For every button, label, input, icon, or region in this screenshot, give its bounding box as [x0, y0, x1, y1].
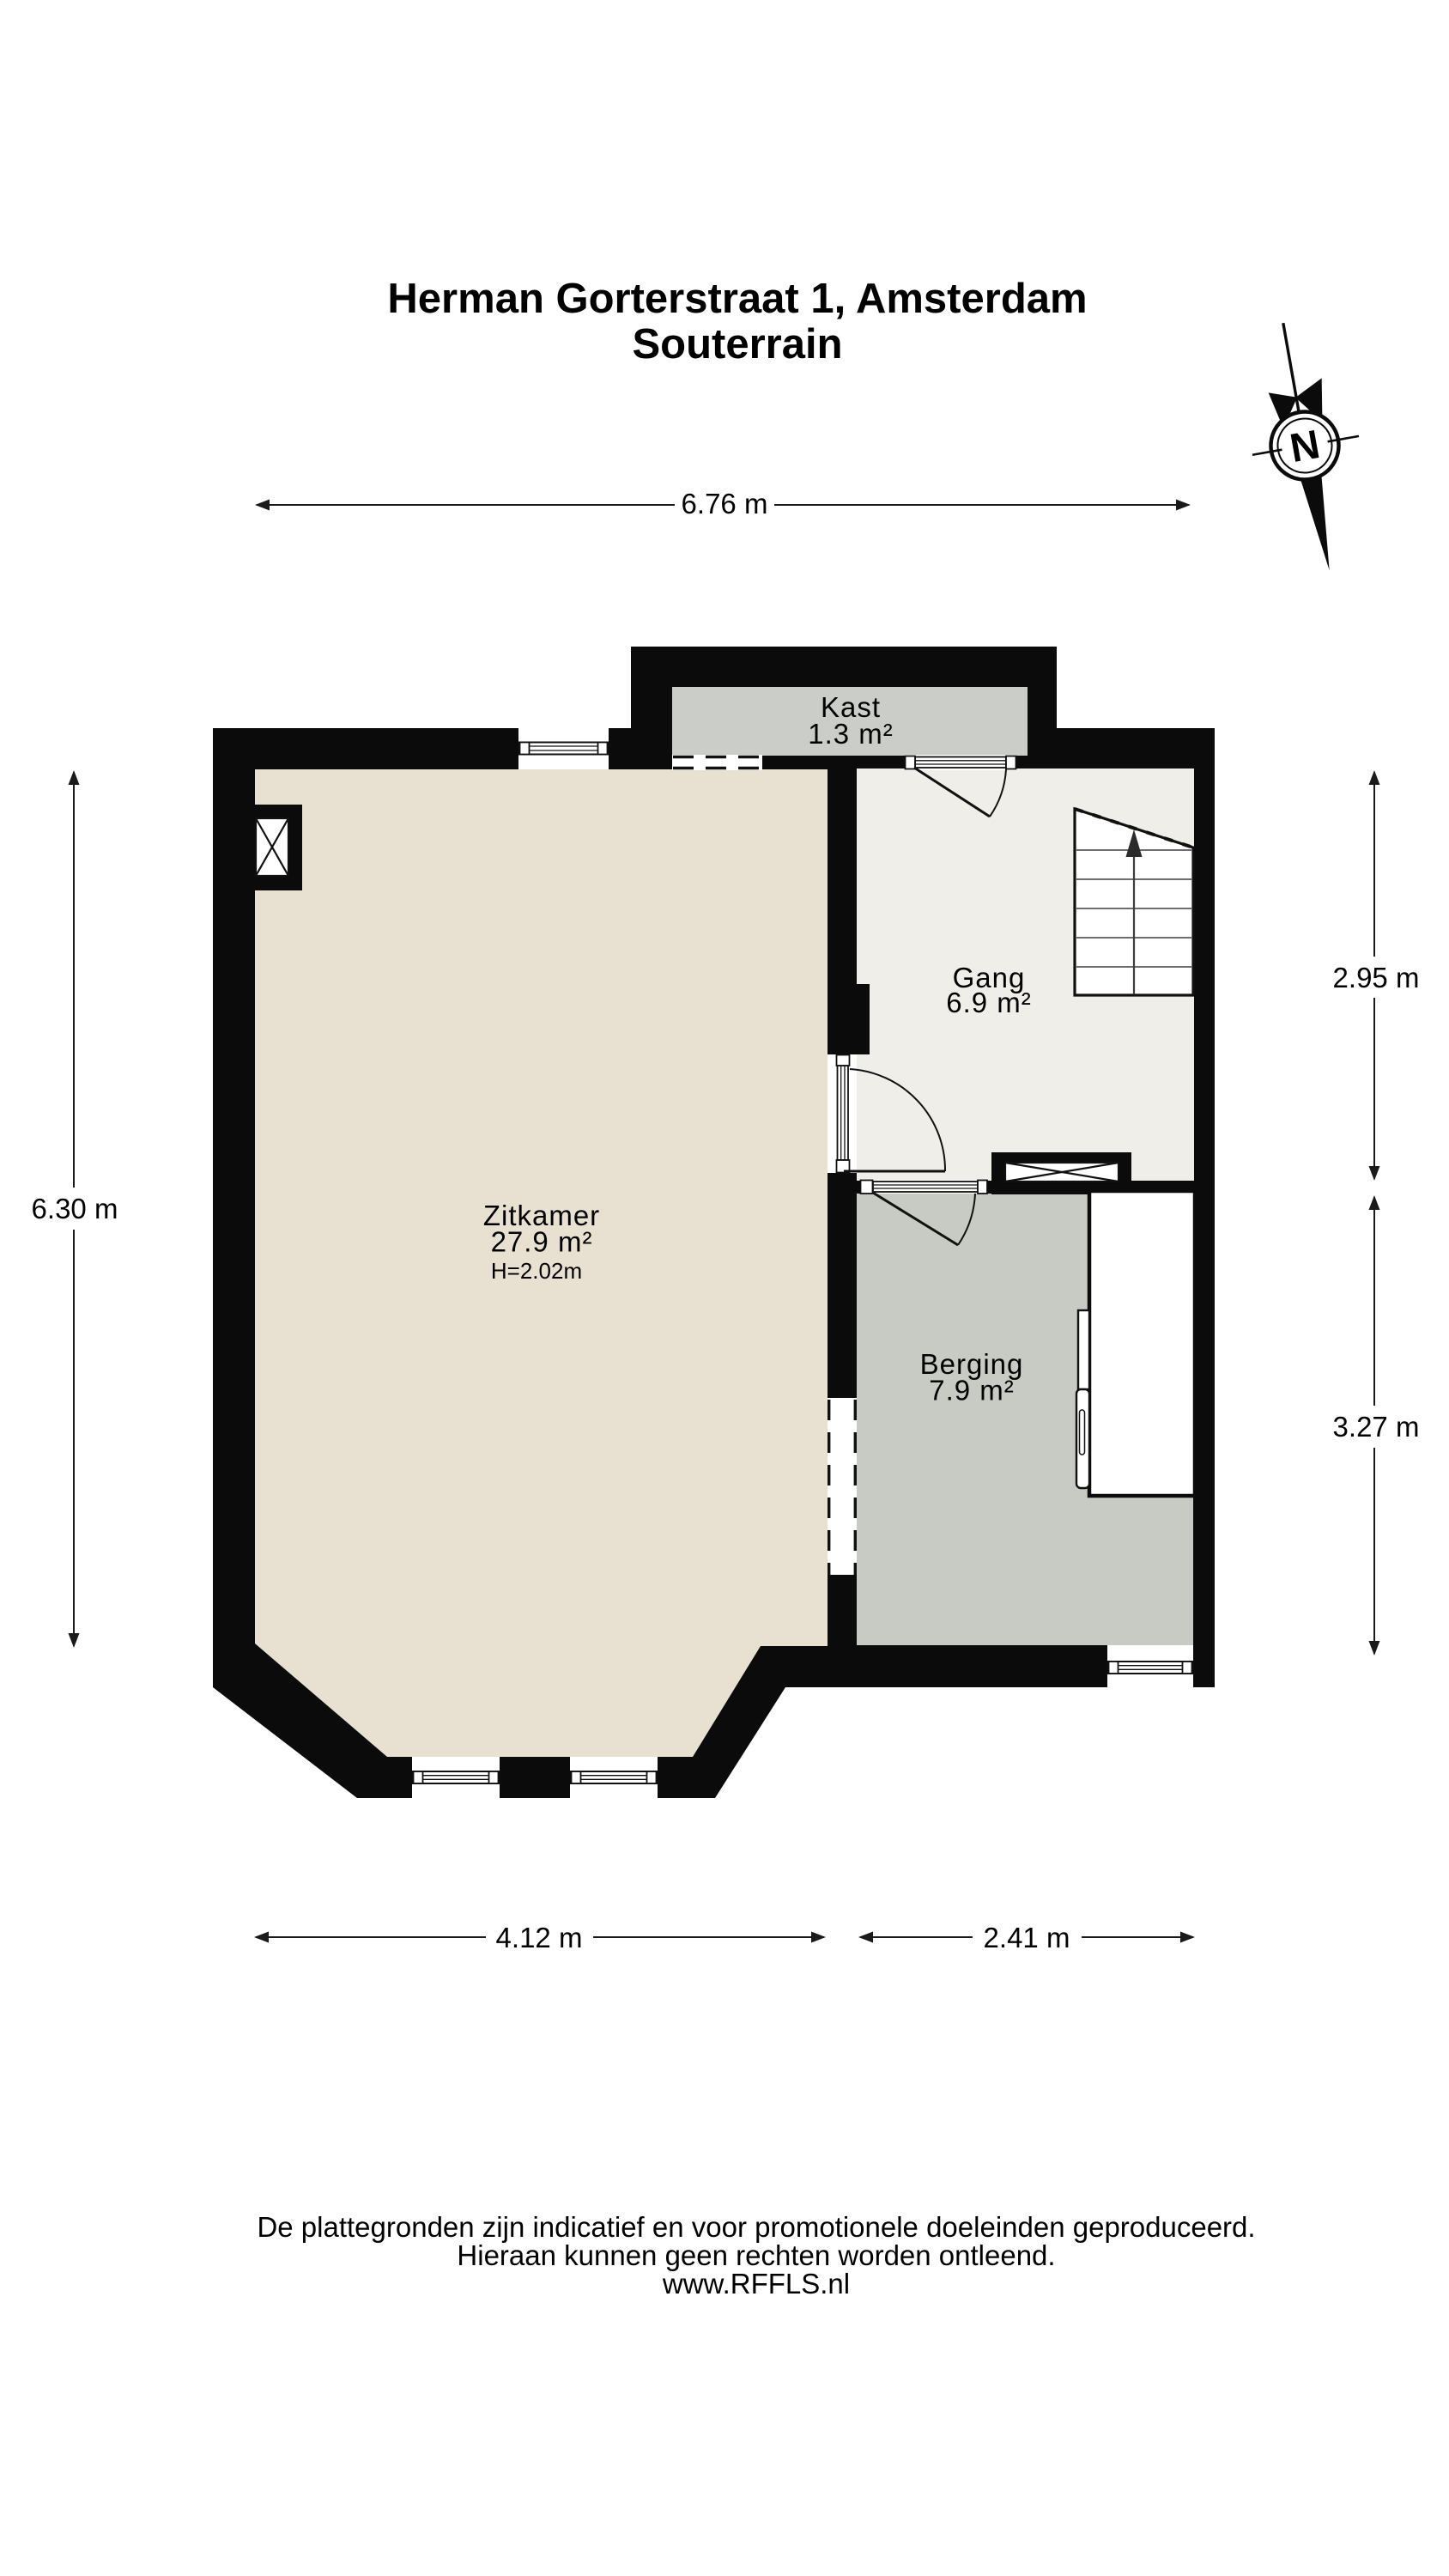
svg-text:4.12 m: 4.12 m [496, 1922, 583, 1953]
svg-text:2.95 m: 2.95 m [1333, 962, 1420, 993]
svg-text:Herman Gorterstraat 1, Amsterd: Herman Gorterstraat 1, Amsterdam [387, 276, 1087, 322]
svg-text:6.9 m²: 6.9 m² [946, 987, 1032, 1018]
svg-text:Souterrain: Souterrain [632, 321, 842, 368]
svg-text:6.76 m: 6.76 m [682, 488, 768, 519]
svg-text:3.27 m: 3.27 m [1333, 1411, 1420, 1443]
svg-text:1.3 m²: 1.3 m² [808, 718, 894, 750]
svg-text:7.9 m²: 7.9 m² [929, 1375, 1015, 1406]
svg-text:Hieraan kunnen geen rechten wo: Hieraan kunnen geen rechten worden ontle… [457, 2239, 1055, 2271]
svg-text:2.41 m: 2.41 m [984, 1922, 1070, 1953]
svg-text:6.30 m: 6.30 m [32, 1193, 118, 1224]
svg-text:27.9 m²: 27.9 m² [491, 1226, 593, 1258]
svg-text:H=2.02m: H=2.02m [491, 1258, 582, 1284]
svg-text:www.RFFLS.nl: www.RFFLS.nl [662, 2268, 850, 2300]
svg-text:De plattegronden zijn indicati: De plattegronden zijn indicatief en voor… [257, 2211, 1255, 2243]
